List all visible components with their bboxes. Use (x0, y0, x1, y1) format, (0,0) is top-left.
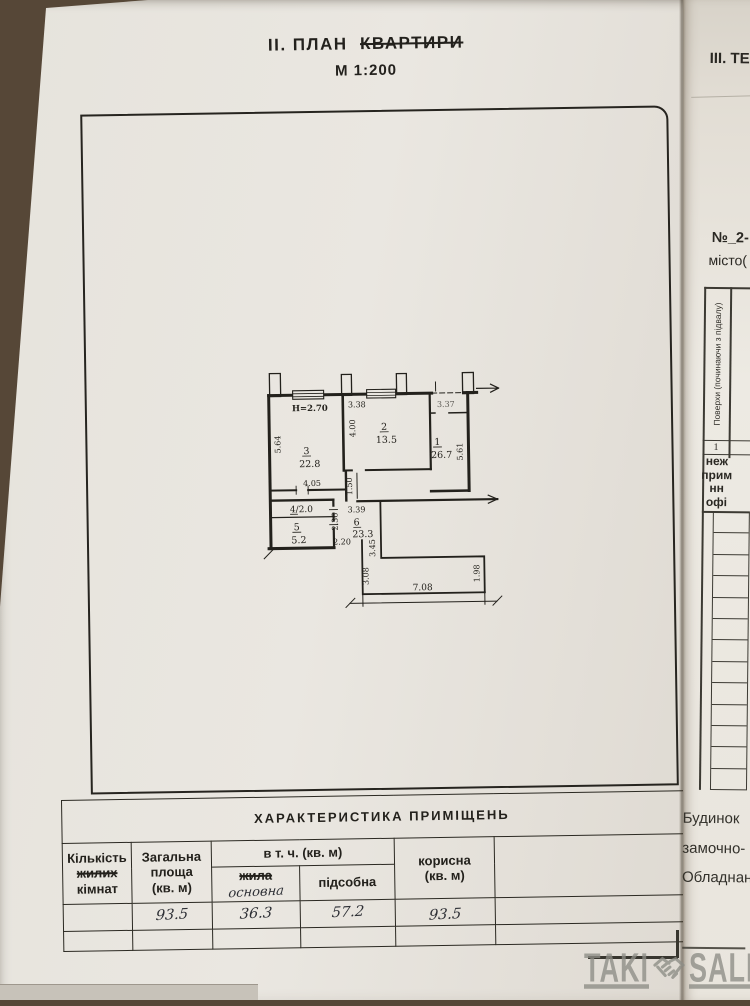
section-title: ІІ. ПЛАН КВАРТИРИ (83, 30, 648, 59)
header-empty-column (494, 833, 703, 897)
dim-r3-bottom: 4.05 (303, 479, 321, 488)
room1-number: 1 (434, 437, 440, 448)
value-room-count (63, 904, 132, 932)
header-living-area: жила основна (212, 866, 301, 903)
header-room-count: Кількість жилих кімнат (62, 842, 132, 904)
section-title-struck-word: КВАРТИРИ (360, 33, 464, 54)
plan-scale: М 1:200 (83, 58, 648, 84)
section-title-prefix: ІІ. ПЛАН (268, 34, 348, 54)
dim-r1-right: 5.61 (455, 443, 464, 461)
room6-area: 23.3 (352, 529, 373, 540)
page-fold-shadow (679, 0, 686, 1000)
bottom-text-line: замочно- (682, 840, 745, 858)
dim-r3-left: 5.64 (273, 436, 282, 454)
empty-table-rows (710, 512, 750, 790)
value-useful-area: 93.5 (395, 902, 495, 931)
bottom-text-line: Обладнан (682, 869, 750, 887)
characteristics-table: ХАРАКТЕРИСТИКА ПРИМІЩЕНЬ Кількість жилих… (61, 790, 704, 952)
faint-line (691, 95, 750, 98)
wall-opening-dashed (432, 393, 464, 394)
floor-plan-page: ІІ. ПЛАН КВАРТИРИ М 1:200 (0, 0, 750, 1000)
room6-number: 6 (354, 517, 360, 528)
premises-text-block: неж прим нн офі (683, 455, 750, 510)
dim-r1-top: 3.37 (437, 400, 455, 409)
taki-sale-watermark: TAKI SALE (584, 941, 750, 995)
header-including-group: в т. ч. (кв. м) (211, 838, 394, 867)
room5-number: 5 (294, 522, 300, 533)
hall-top-wall (270, 500, 333, 501)
next-page-sliver: ІІІ. ТЕ №_2- місто( Поверхи (починаючи з… (683, 0, 750, 1000)
watermark-text-left: TAKI (584, 945, 649, 992)
pilaster (396, 373, 406, 394)
room2-bottom-wall (344, 469, 431, 470)
value-total-area: 93.5 (132, 902, 212, 930)
pilaster (269, 373, 280, 396)
page-bottom-edge (0, 984, 258, 1001)
value-utility-area: 57.2 (300, 899, 395, 927)
city-line: місто( (708, 252, 747, 268)
entrance-arrow-icon (477, 384, 499, 392)
room3-area: 22.8 (299, 459, 320, 470)
exterior-wall-bottom-left (269, 548, 334, 549)
room1-area: 26.7 (431, 450, 452, 461)
room2-area: 13.5 (376, 435, 397, 446)
room5-area: 5.2 (291, 535, 306, 546)
watermark-text-right: SALE (689, 945, 750, 992)
handwritten-osnovna: основна (228, 883, 285, 901)
handshake-icon (650, 952, 688, 984)
room4-label: 4/2.0 (290, 505, 313, 515)
next-section-title: ІІІ. ТЕ (710, 50, 750, 67)
struck-word-zhylykh: жилих (65, 865, 129, 882)
dim-terrace-right: 1.98 (472, 564, 481, 582)
floor-plan-drawing: H=2.70 3.38 3.37 5.64 4.00 5.61 4.05 1.5… (253, 363, 512, 617)
struck-word-zhyla: жила (214, 867, 297, 884)
floor-row-value: 1 (702, 441, 729, 454)
dim-r2-top: 3.38 (348, 400, 366, 409)
dim-terrace-mid: 3.45 (368, 539, 377, 557)
floors-column-header: Поверхи (починаючи з підвалу) (704, 288, 732, 440)
wall-r4-r5 (273, 517, 334, 518)
room1-bottom-wall (431, 491, 469, 492)
pilaster (462, 372, 473, 393)
dim-hall-top: 3.39 (347, 505, 365, 514)
dim-corridor: 1.50 (345, 477, 354, 495)
document-number: №_2- (712, 230, 749, 246)
room1-top-wall (430, 413, 468, 414)
room3-bottom-wall (270, 489, 344, 490)
room2-number: 2 (381, 422, 387, 433)
dim-ceiling-height: H=2.70 (292, 404, 328, 415)
value-living-area: 36.3 (212, 901, 300, 929)
dim-r5-left: 2.36 (331, 513, 340, 531)
header-total-area: Загальна площа (кв. м) (131, 841, 212, 903)
terrace-outline (361, 501, 484, 594)
dim-r2-left: 4.00 (348, 419, 357, 437)
photo-of-document: ІІ. ПЛАН КВАРТИРИ М 1:200 (0, 0, 750, 1000)
hall-right-wall (357, 499, 497, 501)
header-useful-area: корисна (кв. м) (394, 837, 495, 900)
exterior-wall-left (269, 396, 271, 549)
dim-r5-bottom: 2.20 (333, 537, 351, 546)
pilaster (341, 374, 351, 395)
exterior-wall-right (468, 393, 470, 491)
bottom-text-line: Будинок (683, 810, 740, 828)
dim-terrace-left: 3.08 (361, 567, 370, 585)
wall-r3-r2 (343, 394, 344, 470)
room3-number: 3 (303, 446, 309, 457)
header-utility-area: підсобна (300, 864, 396, 901)
dim-terrace-bottom: 7.08 (413, 583, 433, 593)
